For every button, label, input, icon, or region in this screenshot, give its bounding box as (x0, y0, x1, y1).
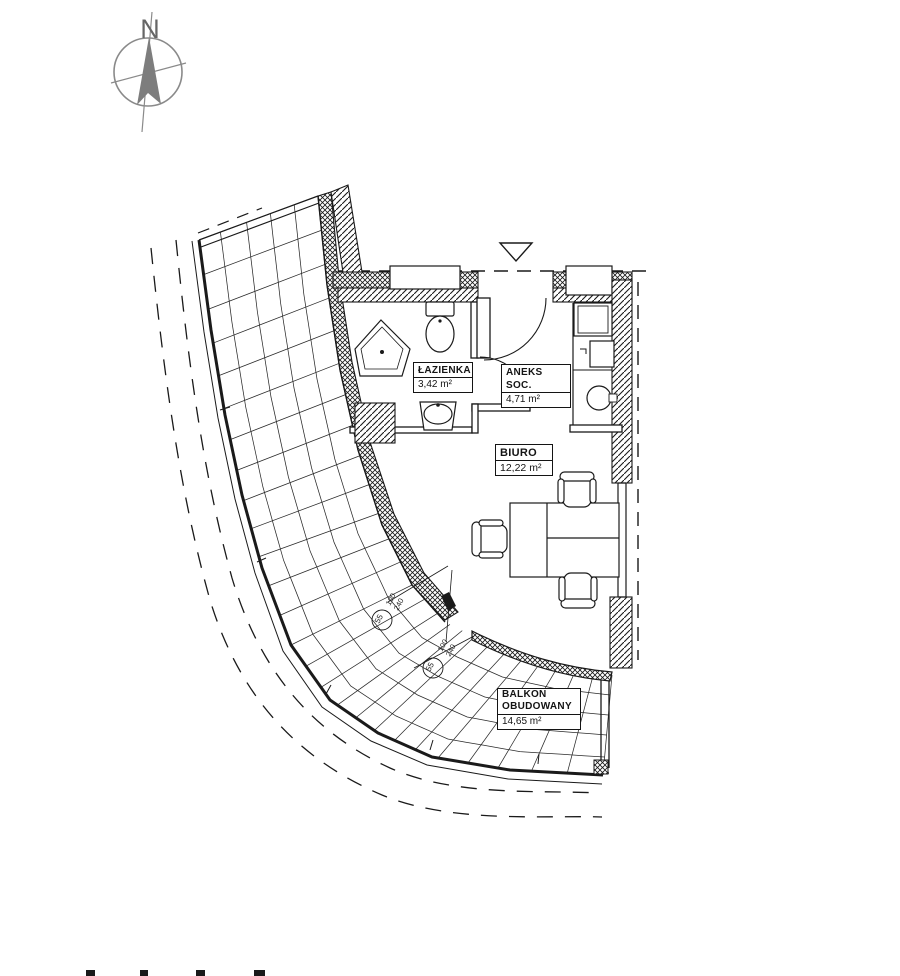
room-area: 3,42 m² (414, 378, 472, 392)
floor-plan-canvas: N (0, 0, 900, 976)
room-label-lazienka: ŁAZIENKA 3,42 m² (413, 362, 473, 393)
east-exterior-wall (610, 280, 632, 668)
shower-icon (355, 320, 410, 376)
scale-bar-fragment (86, 970, 265, 976)
room-name: ŁAZIENKA (414, 363, 472, 378)
toilet-icon (426, 302, 454, 352)
room-area: 4,71 m² (502, 393, 570, 407)
entrance-triangle-icon (500, 243, 532, 261)
room-name-line1: BALKON (498, 689, 580, 701)
aneks-fixtures (573, 303, 618, 425)
room-name: ANEKS SOC. (502, 365, 570, 393)
room-name-line2: OBUDOWANY (498, 701, 580, 715)
desk (510, 503, 619, 577)
office-chair (559, 573, 597, 608)
room-area: 14,65 m² (498, 715, 580, 729)
office-furniture (472, 472, 619, 608)
washbasin-icon (420, 402, 456, 430)
floor-plan-drawing: N (0, 0, 900, 976)
room-label-balkon: BALKON OBUDOWANY 14,65 m² (497, 688, 581, 730)
room-area: 12,22 m² (496, 461, 552, 475)
compass-north-label: N (140, 14, 160, 44)
appliance-icon (590, 341, 614, 367)
balcony-wall-end-block (594, 760, 608, 774)
entrance-door-swing-arc (484, 298, 546, 360)
room-name: BIURO (496, 445, 552, 461)
room-label-biuro: BIURO 12,22 m² (495, 444, 553, 476)
svg-text:55: 55 (424, 660, 436, 673)
office-chair (558, 472, 596, 507)
room-label-aneks-soc: ANEKS SOC. 4,71 m² (501, 364, 571, 408)
window-marker-1: 100 240 55 (372, 592, 406, 630)
office-chair (472, 520, 507, 558)
entrance-door-leaf (477, 298, 490, 358)
